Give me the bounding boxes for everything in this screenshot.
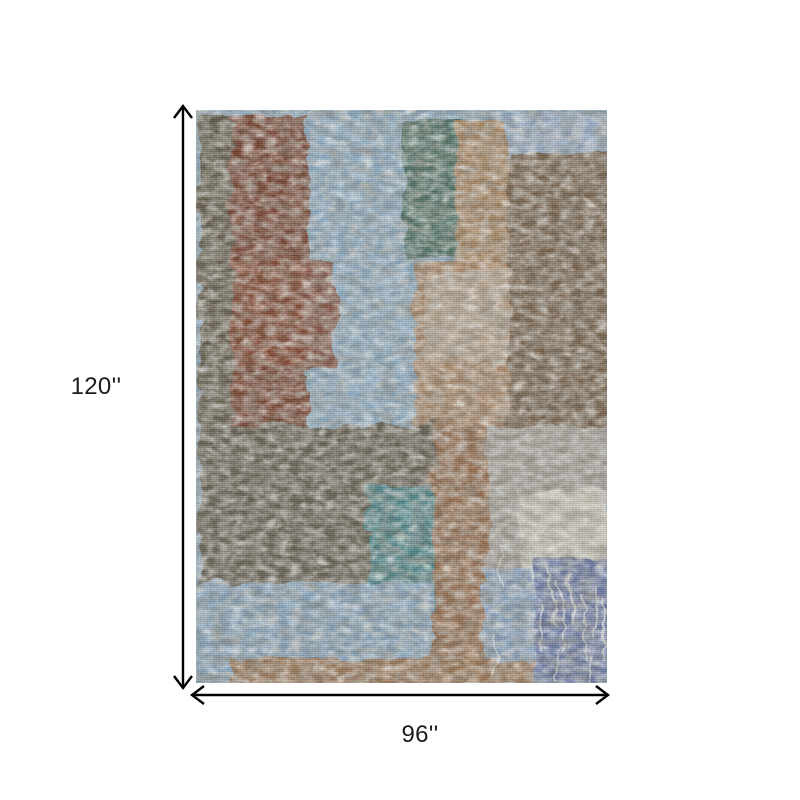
- height-dimension-arrow: [168, 100, 198, 694]
- width-dimension-label: 96'': [360, 722, 480, 748]
- rug-texture-overlay-grain: [196, 110, 607, 683]
- width-dimension-arrow: [186, 680, 614, 710]
- height-dimension-label: 120'': [36, 374, 156, 400]
- rug-product-image: [196, 110, 607, 683]
- rug-art: [196, 110, 607, 683]
- product-dimension-image: 120'' 96'': [0, 0, 800, 800]
